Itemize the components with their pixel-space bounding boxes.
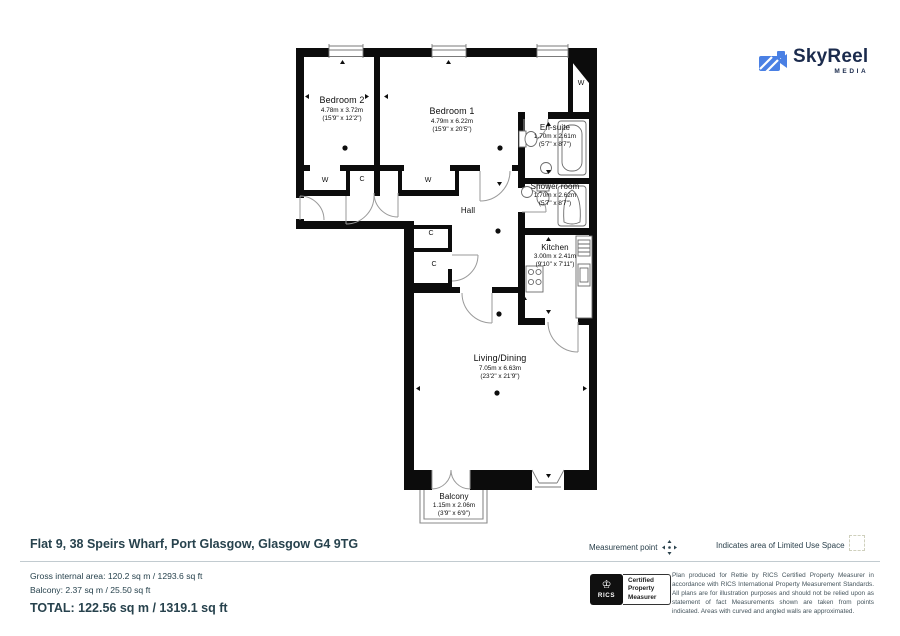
closet-label: C <box>424 230 438 237</box>
measurement-arrow-icon <box>340 60 345 64</box>
shower-icon <box>558 186 586 226</box>
measurement-arrow-icon <box>416 386 420 391</box>
brand-text: SkyReel MEDIA <box>793 47 868 75</box>
measurement-dot <box>497 145 502 150</box>
cert-line: Certified <box>628 577 670 585</box>
wardrobe-label: W <box>318 177 332 184</box>
door-icon <box>548 322 578 352</box>
cert-line: Property <box>628 585 670 593</box>
skyreel-logo-icon <box>758 47 788 77</box>
window-icon <box>329 44 363 58</box>
door-icon <box>462 293 492 323</box>
measurement-arrows <box>305 60 587 478</box>
door-icon <box>346 196 374 224</box>
wardrobe-label: W <box>421 177 435 184</box>
total-area-text: TOTAL: 122.56 sq m / 1319.1 sq ft <box>30 601 228 615</box>
measurement-arrow-icon <box>384 94 388 99</box>
measurement-arrow-icon <box>446 60 451 64</box>
double-door-icon <box>432 470 470 489</box>
footer-divider <box>20 561 880 562</box>
measurement-dot <box>494 390 499 395</box>
brand-subtitle: MEDIA <box>834 68 868 75</box>
rics-wordmark: RICS <box>598 592 615 599</box>
measurement-point-label: Measurement point <box>589 543 657 552</box>
cert-line: Measurer <box>628 594 670 602</box>
rics-logo: ♔ RICS <box>590 574 623 605</box>
measurement-dot <box>495 228 500 233</box>
measurement-point-icon <box>662 540 677 555</box>
basin-icon <box>522 187 533 198</box>
closet-label: C <box>355 176 369 183</box>
measurement-dot <box>342 145 347 150</box>
brand-name: SkyReel <box>793 47 868 67</box>
property-address: Flat 9, 38 Speirs Wharf, Port Glasgow, G… <box>30 537 358 551</box>
measurement-arrow-icon <box>546 237 551 241</box>
rics-crown-icon: ♔ <box>602 580 612 591</box>
fixtures-layer <box>519 121 592 318</box>
measurement-arrow-icon <box>365 94 369 99</box>
doors-layer <box>300 119 578 489</box>
window-icon <box>537 44 568 58</box>
door-icon <box>374 193 398 217</box>
door-icon <box>300 196 324 220</box>
measurement-arrow-icon <box>546 310 551 314</box>
disclaimer-text: Plan produced for Rettie by RICS Certifi… <box>672 571 874 616</box>
closet-label: C <box>427 261 441 268</box>
measurement-point-legend: Measurement point <box>589 540 677 555</box>
bathtub-icon <box>558 121 586 175</box>
walls-layer <box>296 48 597 490</box>
rics-cert-box: Certified Property Measurer <box>623 574 671 605</box>
measurement-dot <box>496 311 501 316</box>
door-icon <box>452 255 478 281</box>
gross-area-text: Gross internal area: 120.2 sq m / 1293.6… <box>30 570 228 584</box>
measurement-arrow-icon <box>546 122 551 126</box>
window-icon <box>432 44 466 58</box>
rics-certification: ♔ RICS Certified Property Measurer <box>590 574 671 605</box>
limited-use-swatch-icon <box>849 535 865 551</box>
kitchen-counter-icon <box>576 236 592 318</box>
door-icon <box>480 171 510 201</box>
floorplan-page: Bedroom 2 4.78m x 3.72m (15'9" x 12'2") … <box>0 0 900 636</box>
wardrobe-label: W <box>574 80 588 87</box>
basin-icon <box>541 163 552 174</box>
hob-icon <box>526 266 543 292</box>
toilet-icon <box>537 185 549 205</box>
balcony-area-text: Balcony: 2.37 sq m / 25.50 sq ft <box>30 584 228 598</box>
measurement-arrow-icon <box>305 94 309 99</box>
area-summary: Gross internal area: 120.2 sq m / 1293.6… <box>30 570 228 615</box>
balcony-outline <box>420 490 487 523</box>
measurement-arrow-icon <box>583 386 587 391</box>
toilet-icon <box>519 131 537 147</box>
window-icon <box>532 470 564 490</box>
brand-logo: SkyReel MEDIA <box>758 47 868 77</box>
measurement-arrow-icon <box>497 182 502 186</box>
limited-use-legend: Indicates area of Limited Use Space <box>716 541 845 550</box>
